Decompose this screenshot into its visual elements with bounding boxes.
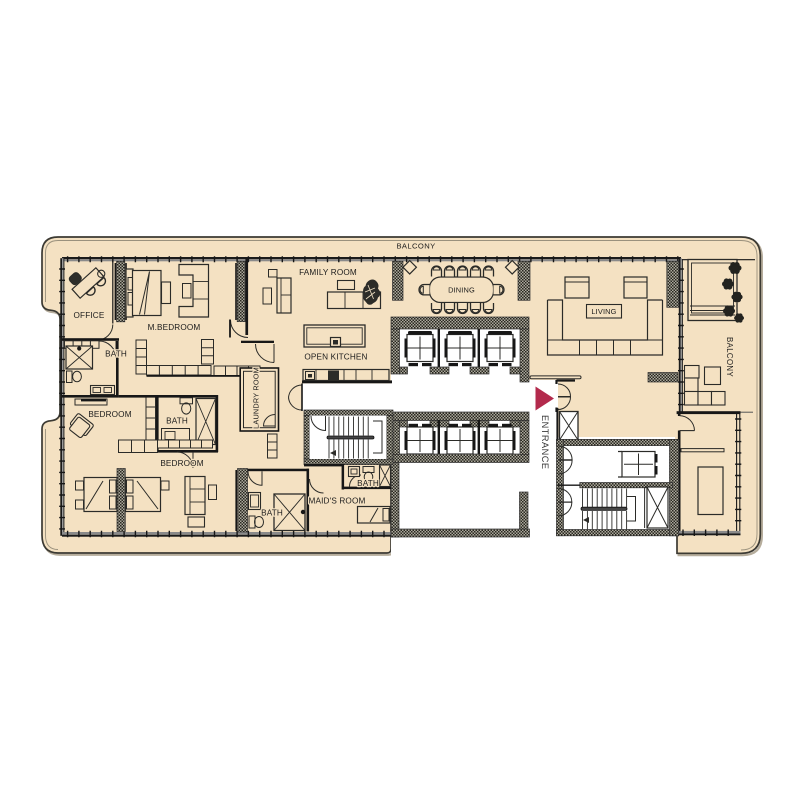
svg-text:MAID'S ROOM: MAID'S ROOM xyxy=(309,497,366,506)
svg-text:BALCONY: BALCONY xyxy=(396,242,435,251)
svg-text:BALCONY: BALCONY xyxy=(725,337,734,377)
svg-text:OFFICE: OFFICE xyxy=(74,311,105,320)
svg-text:FAMILY ROOM: FAMILY ROOM xyxy=(299,268,357,277)
svg-text:BATH: BATH xyxy=(105,350,127,359)
svg-text:BATH: BATH xyxy=(357,479,379,488)
svg-text:OPEN KITCHEN: OPEN KITCHEN xyxy=(304,353,367,362)
svg-text:BEDROOM: BEDROOM xyxy=(160,459,203,468)
svg-text:LAUNDRY ROOM: LAUNDRY ROOM xyxy=(252,367,261,429)
svg-text:DINING: DINING xyxy=(448,286,475,295)
svg-text:BATH: BATH xyxy=(166,417,188,426)
svg-text:ENTRANCE: ENTRANCE xyxy=(540,415,550,470)
svg-text:LIVING: LIVING xyxy=(591,307,616,316)
svg-text:BEDROOM: BEDROOM xyxy=(88,410,131,419)
svg-text:BATH: BATH xyxy=(261,509,283,518)
svg-text:M.BEDROOM: M.BEDROOM xyxy=(148,323,201,332)
